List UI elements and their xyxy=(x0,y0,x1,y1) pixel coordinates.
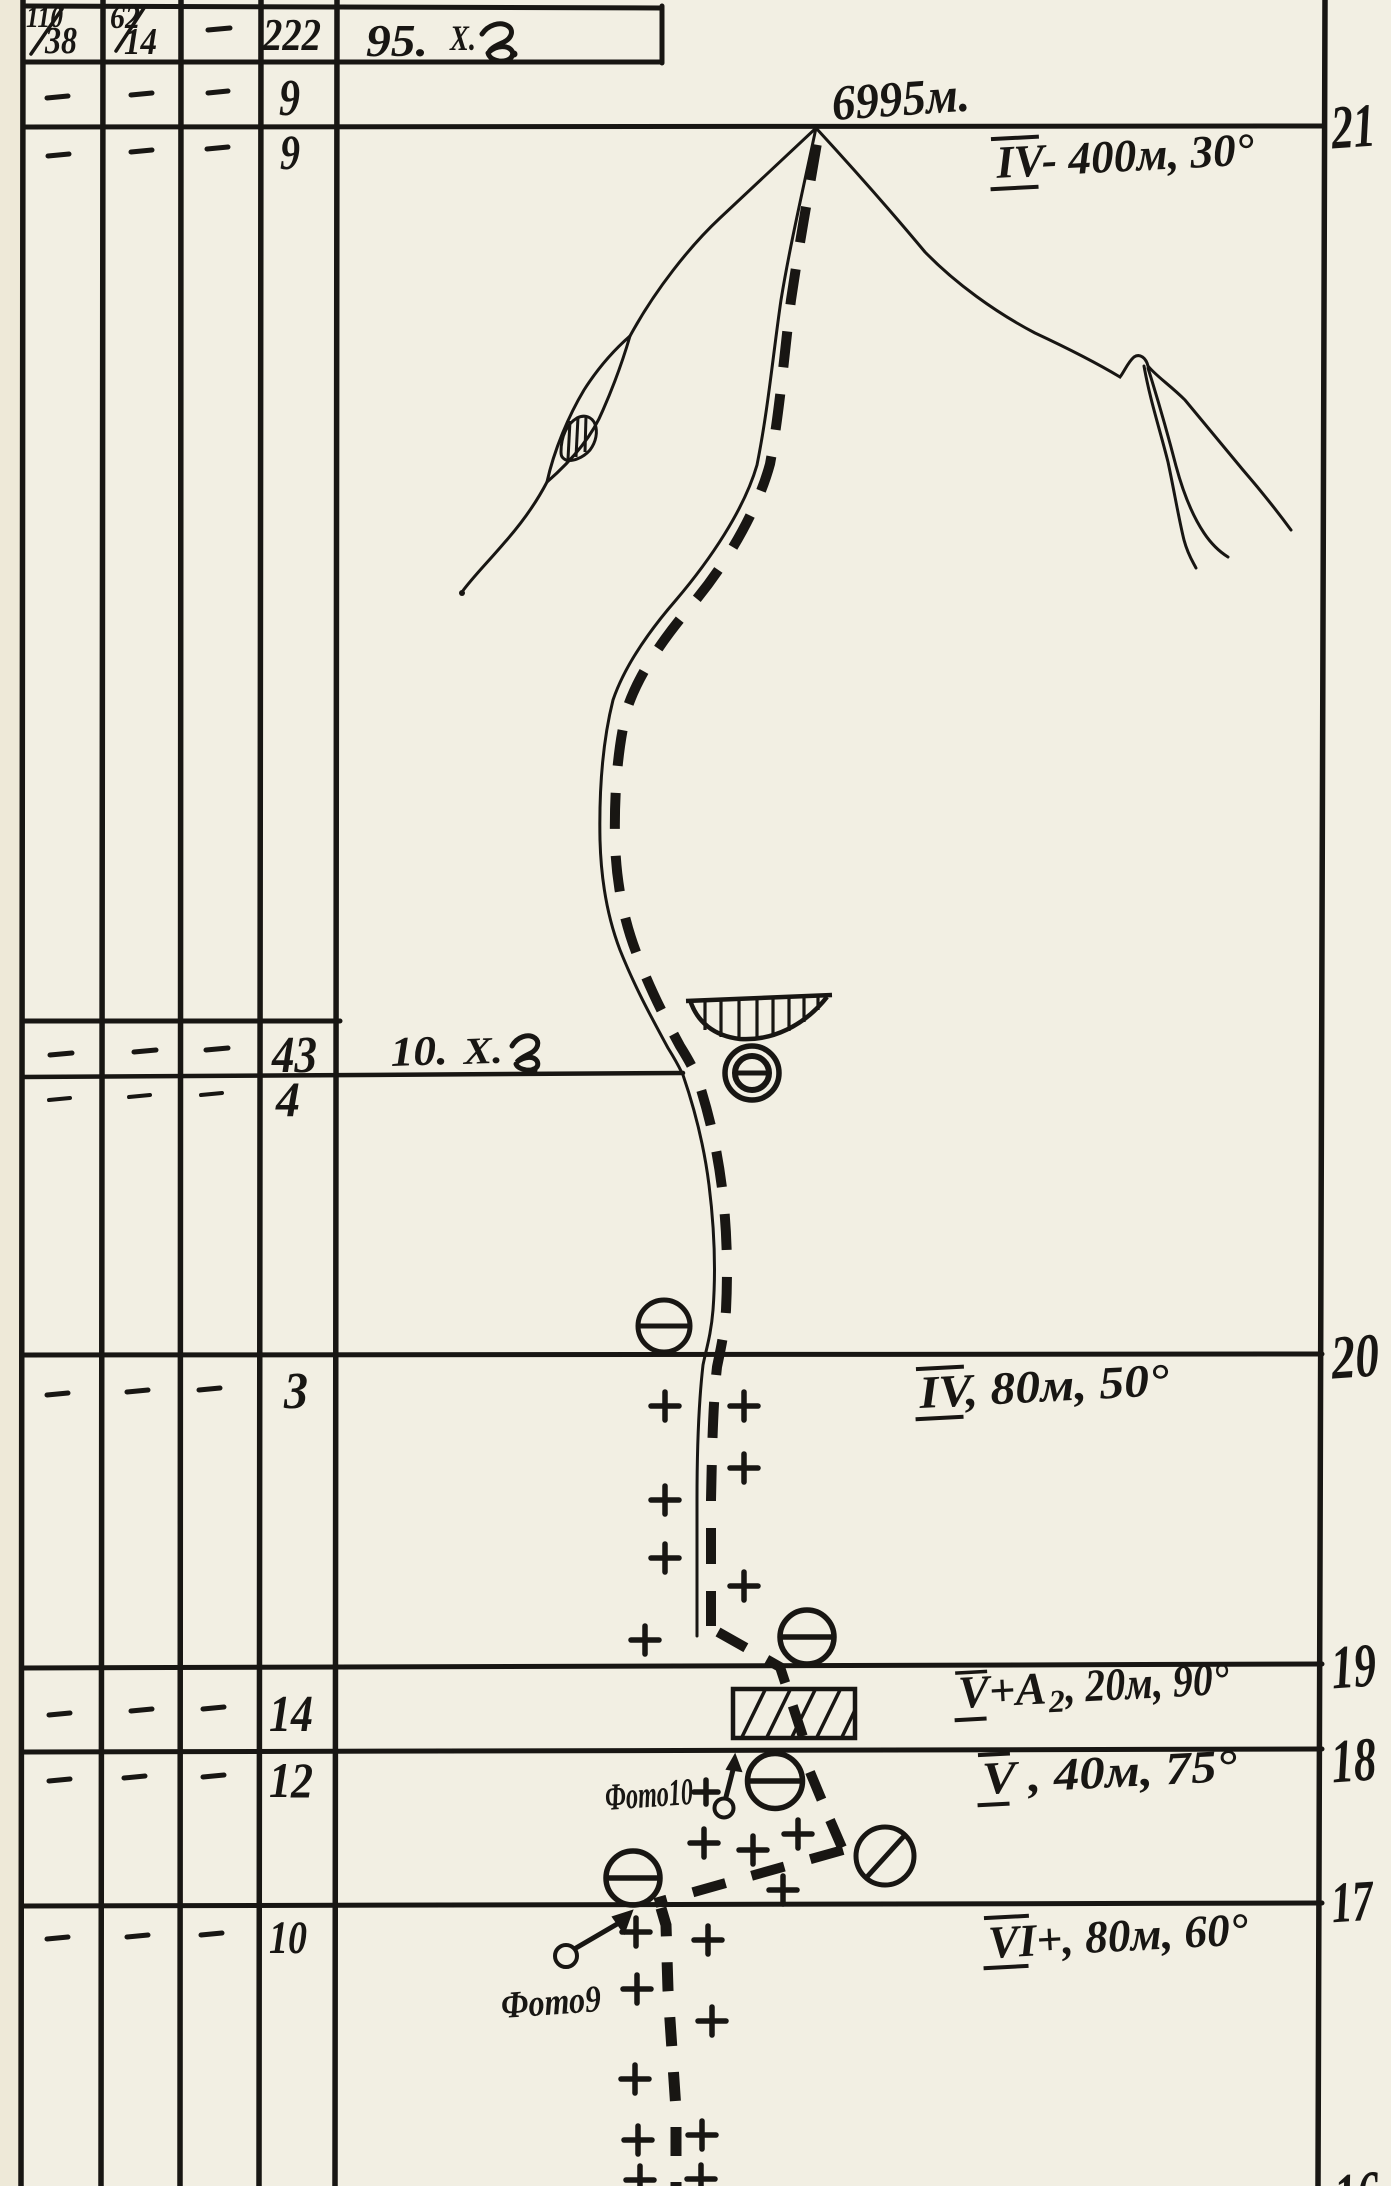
svg-text:9: 9 xyxy=(279,70,300,127)
svg-text:X.: X. xyxy=(449,18,476,58)
svg-text:14: 14 xyxy=(124,21,157,63)
svg-text:17: 17 xyxy=(1329,1868,1377,1936)
svg-text:38: 38 xyxy=(44,20,77,62)
svg-text:19: 19 xyxy=(1329,1631,1379,1702)
svg-text:21: 21 xyxy=(1328,92,1377,163)
svg-text:14: 14 xyxy=(269,1686,313,1743)
svg-text:, 20м, 90°: , 20м, 90° xyxy=(1063,1653,1231,1713)
svg-text:16: 16 xyxy=(1331,2159,1383,2186)
svg-text:Фото9: Фото9 xyxy=(500,1978,603,2027)
svg-text:222: 222 xyxy=(262,10,321,60)
svg-text:9: 9 xyxy=(280,124,300,180)
svg-text:2: 2 xyxy=(1047,1682,1066,1719)
svg-text:4: 4 xyxy=(275,1071,300,1127)
svg-text:18: 18 xyxy=(1329,1725,1379,1796)
svg-text:X.: X. xyxy=(462,1030,504,1073)
svg-text:10.: 10. xyxy=(390,1028,449,1076)
svg-text:6995м.: 6995м. xyxy=(830,65,972,130)
svg-text:10: 10 xyxy=(269,1912,307,1964)
svg-text:12: 12 xyxy=(269,1752,313,1808)
svg-text:Фото10: Фото10 xyxy=(604,1771,695,1819)
svg-text:95.: 95. xyxy=(366,15,428,66)
svg-text:3: 3 xyxy=(283,1363,308,1420)
svg-text:20: 20 xyxy=(1328,1321,1381,1392)
